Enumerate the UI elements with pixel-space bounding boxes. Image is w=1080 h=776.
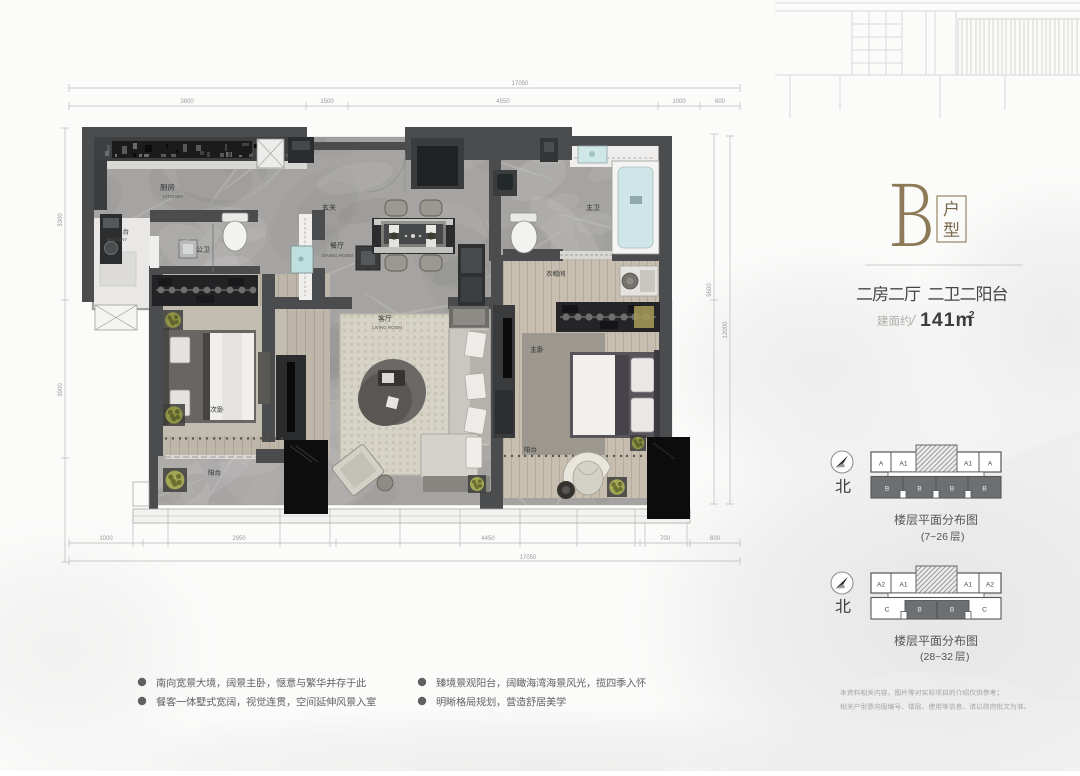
- svg-text:600: 600: [710, 536, 721, 542]
- svg-text:9600: 9600: [707, 283, 713, 297]
- svg-text:A2: A2: [877, 582, 885, 589]
- svg-text:1000: 1000: [672, 99, 686, 105]
- svg-text:3900: 3900: [58, 383, 64, 397]
- svg-text:3800: 3800: [180, 99, 194, 105]
- svg-text:1000: 1000: [99, 536, 113, 542]
- svg-text:KITCHEN: KITCHEN: [163, 194, 183, 199]
- svg-text:C: C: [982, 607, 987, 614]
- svg-text:700: 700: [660, 536, 671, 542]
- svg-text:4550: 4550: [496, 99, 510, 105]
- svg-text:4450: 4450: [481, 536, 495, 542]
- svg-text:141m: 141m: [920, 309, 974, 331]
- svg-text:A: A: [879, 461, 884, 468]
- svg-text:B: B: [982, 486, 986, 493]
- svg-text:17050: 17050: [520, 555, 537, 561]
- svg-text:DINING ROOM: DINING ROOM: [322, 253, 353, 258]
- svg-text:A2: A2: [986, 582, 994, 589]
- svg-text:B: B: [885, 486, 889, 493]
- svg-text:B: B: [917, 607, 921, 614]
- svg-text:A1: A1: [964, 582, 972, 589]
- svg-text:2950: 2950: [232, 536, 246, 542]
- svg-text:): ): [961, 531, 965, 543]
- svg-text:(28~32: (28~32: [920, 651, 953, 663]
- svg-text:600: 600: [715, 99, 726, 105]
- svg-text:B: B: [917, 486, 921, 493]
- svg-text:12000: 12000: [723, 321, 729, 338]
- svg-text:A1: A1: [964, 461, 972, 468]
- svg-text:): ): [966, 651, 970, 663]
- svg-text:LIVING ROOM: LIVING ROOM: [372, 325, 402, 330]
- svg-text:B: B: [950, 607, 954, 614]
- svg-text:3300: 3300: [58, 213, 64, 227]
- svg-text:1500: 1500: [320, 99, 334, 105]
- svg-text:A1: A1: [900, 582, 908, 589]
- svg-text:2: 2: [969, 310, 975, 321]
- svg-text:B: B: [950, 486, 954, 493]
- svg-text:A: A: [988, 461, 993, 468]
- svg-text:C: C: [885, 607, 890, 614]
- svg-text:(7~26: (7~26: [921, 531, 948, 543]
- svg-text:A1: A1: [900, 461, 908, 468]
- svg-text:BALCONY: BALCONY: [107, 237, 127, 242]
- svg-text:17050: 17050: [512, 81, 529, 87]
